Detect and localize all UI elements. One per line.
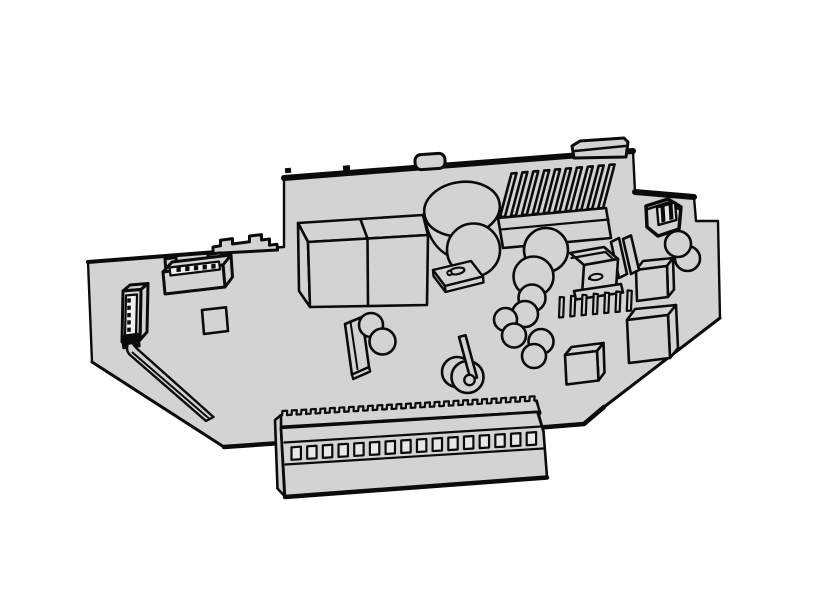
header-pin <box>203 265 207 270</box>
terminal-window <box>464 436 473 449</box>
terminal-block <box>275 396 547 497</box>
terminal-window <box>370 442 379 455</box>
terminal-window <box>511 433 520 446</box>
capacitor <box>502 324 526 348</box>
connector-pin <box>127 328 131 332</box>
figure-canvas <box>0 0 833 600</box>
terminal-window <box>433 438 442 451</box>
terminal-window <box>480 435 489 448</box>
comb-fin <box>582 295 587 316</box>
mounting-tab-round <box>415 153 446 170</box>
terminal-window <box>448 437 457 450</box>
terminal-window <box>307 446 316 459</box>
mounting-tab-rect <box>572 138 628 158</box>
terminal-window <box>354 443 363 456</box>
terminal-window <box>323 445 332 458</box>
pin-header <box>163 253 233 294</box>
smd-pad <box>202 307 228 334</box>
header-pin <box>177 267 181 272</box>
ic-cube-large <box>627 305 678 363</box>
comb-fin <box>627 290 632 311</box>
ic-cube-small <box>565 343 605 385</box>
terminal-window <box>495 434 504 447</box>
transformer-block <box>298 215 428 307</box>
connector-pin <box>127 320 131 324</box>
pcb-illustration <box>0 0 833 600</box>
ic-cube-right <box>636 258 674 301</box>
edge-bump <box>285 168 291 174</box>
terminal-window <box>401 440 410 453</box>
terminal-window <box>292 447 301 460</box>
edge-bump <box>343 165 350 171</box>
header-pin <box>185 266 189 271</box>
terminal-window <box>386 441 395 454</box>
terminal-window <box>339 444 348 457</box>
comb-fin <box>570 296 575 317</box>
header-pin <box>194 265 198 270</box>
terminal-window <box>417 439 426 452</box>
connector-pin <box>127 298 131 302</box>
header-pin <box>211 264 215 269</box>
comb-fin <box>616 292 621 313</box>
comb-fin <box>604 293 609 314</box>
comb-fin <box>593 294 598 315</box>
connector-pin <box>127 306 131 310</box>
connector-slot <box>125 295 137 338</box>
capacitor <box>522 344 546 368</box>
comb-fin <box>559 297 564 318</box>
connector-pin <box>127 313 131 317</box>
terminal-body <box>281 412 547 497</box>
terminal-window <box>527 432 536 445</box>
